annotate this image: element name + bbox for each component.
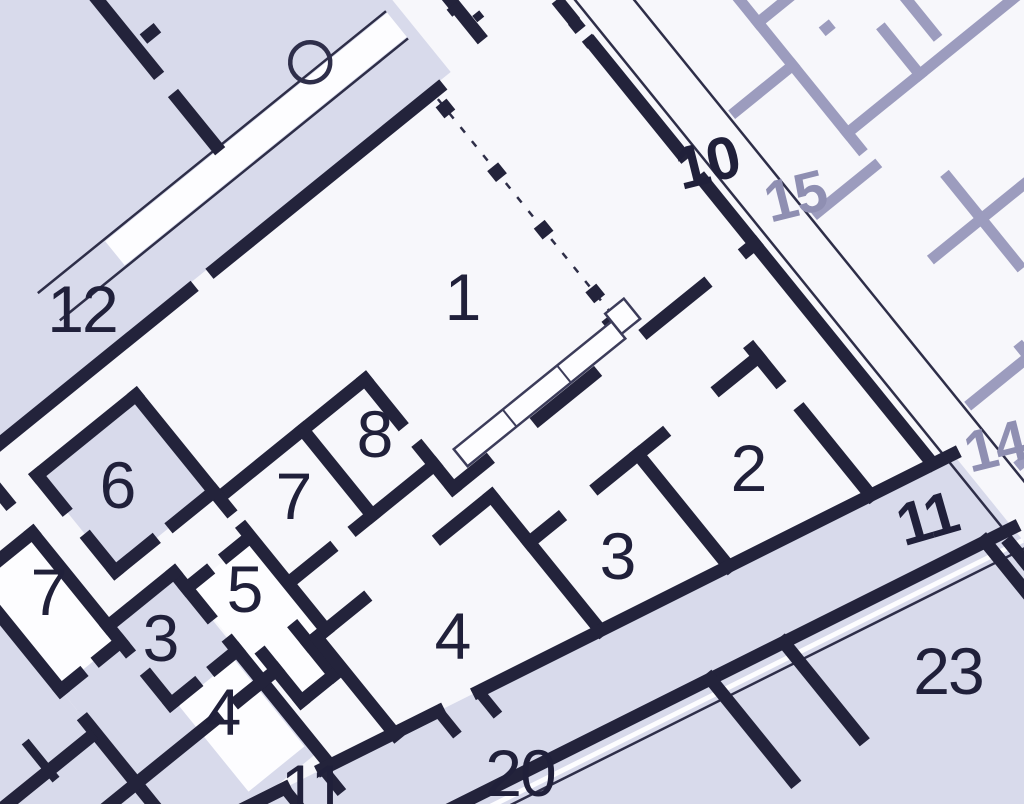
- plan-drawing: [0, 0, 1024, 804]
- room-label-23-14: 23: [913, 638, 982, 704]
- neighbor-entrance-label-15-17: 15: [759, 162, 832, 233]
- room-label-20-13: 20: [485, 740, 554, 804]
- room-label-1-1: 1: [445, 264, 480, 330]
- room-label-2-5: 2: [731, 435, 766, 501]
- room-label-11-12: 11: [281, 755, 346, 804]
- room-label-12-0: 12: [47, 276, 116, 342]
- room-label-6-4: 6: [100, 452, 135, 518]
- room-label-7-9: 7: [31, 559, 66, 625]
- room-label-4-11: 4: [205, 679, 240, 745]
- room-label-4-7: 4: [435, 603, 470, 669]
- room-label-3-10: 3: [143, 605, 178, 671]
- room-label-5-8: 5: [227, 556, 262, 622]
- room-label-7-3: 7: [276, 463, 311, 529]
- room-label-3-6: 3: [600, 523, 635, 589]
- floor-plan-canvas: 121876234573411202310111514: [0, 0, 1024, 804]
- room-label-8-2: 8: [357, 401, 392, 467]
